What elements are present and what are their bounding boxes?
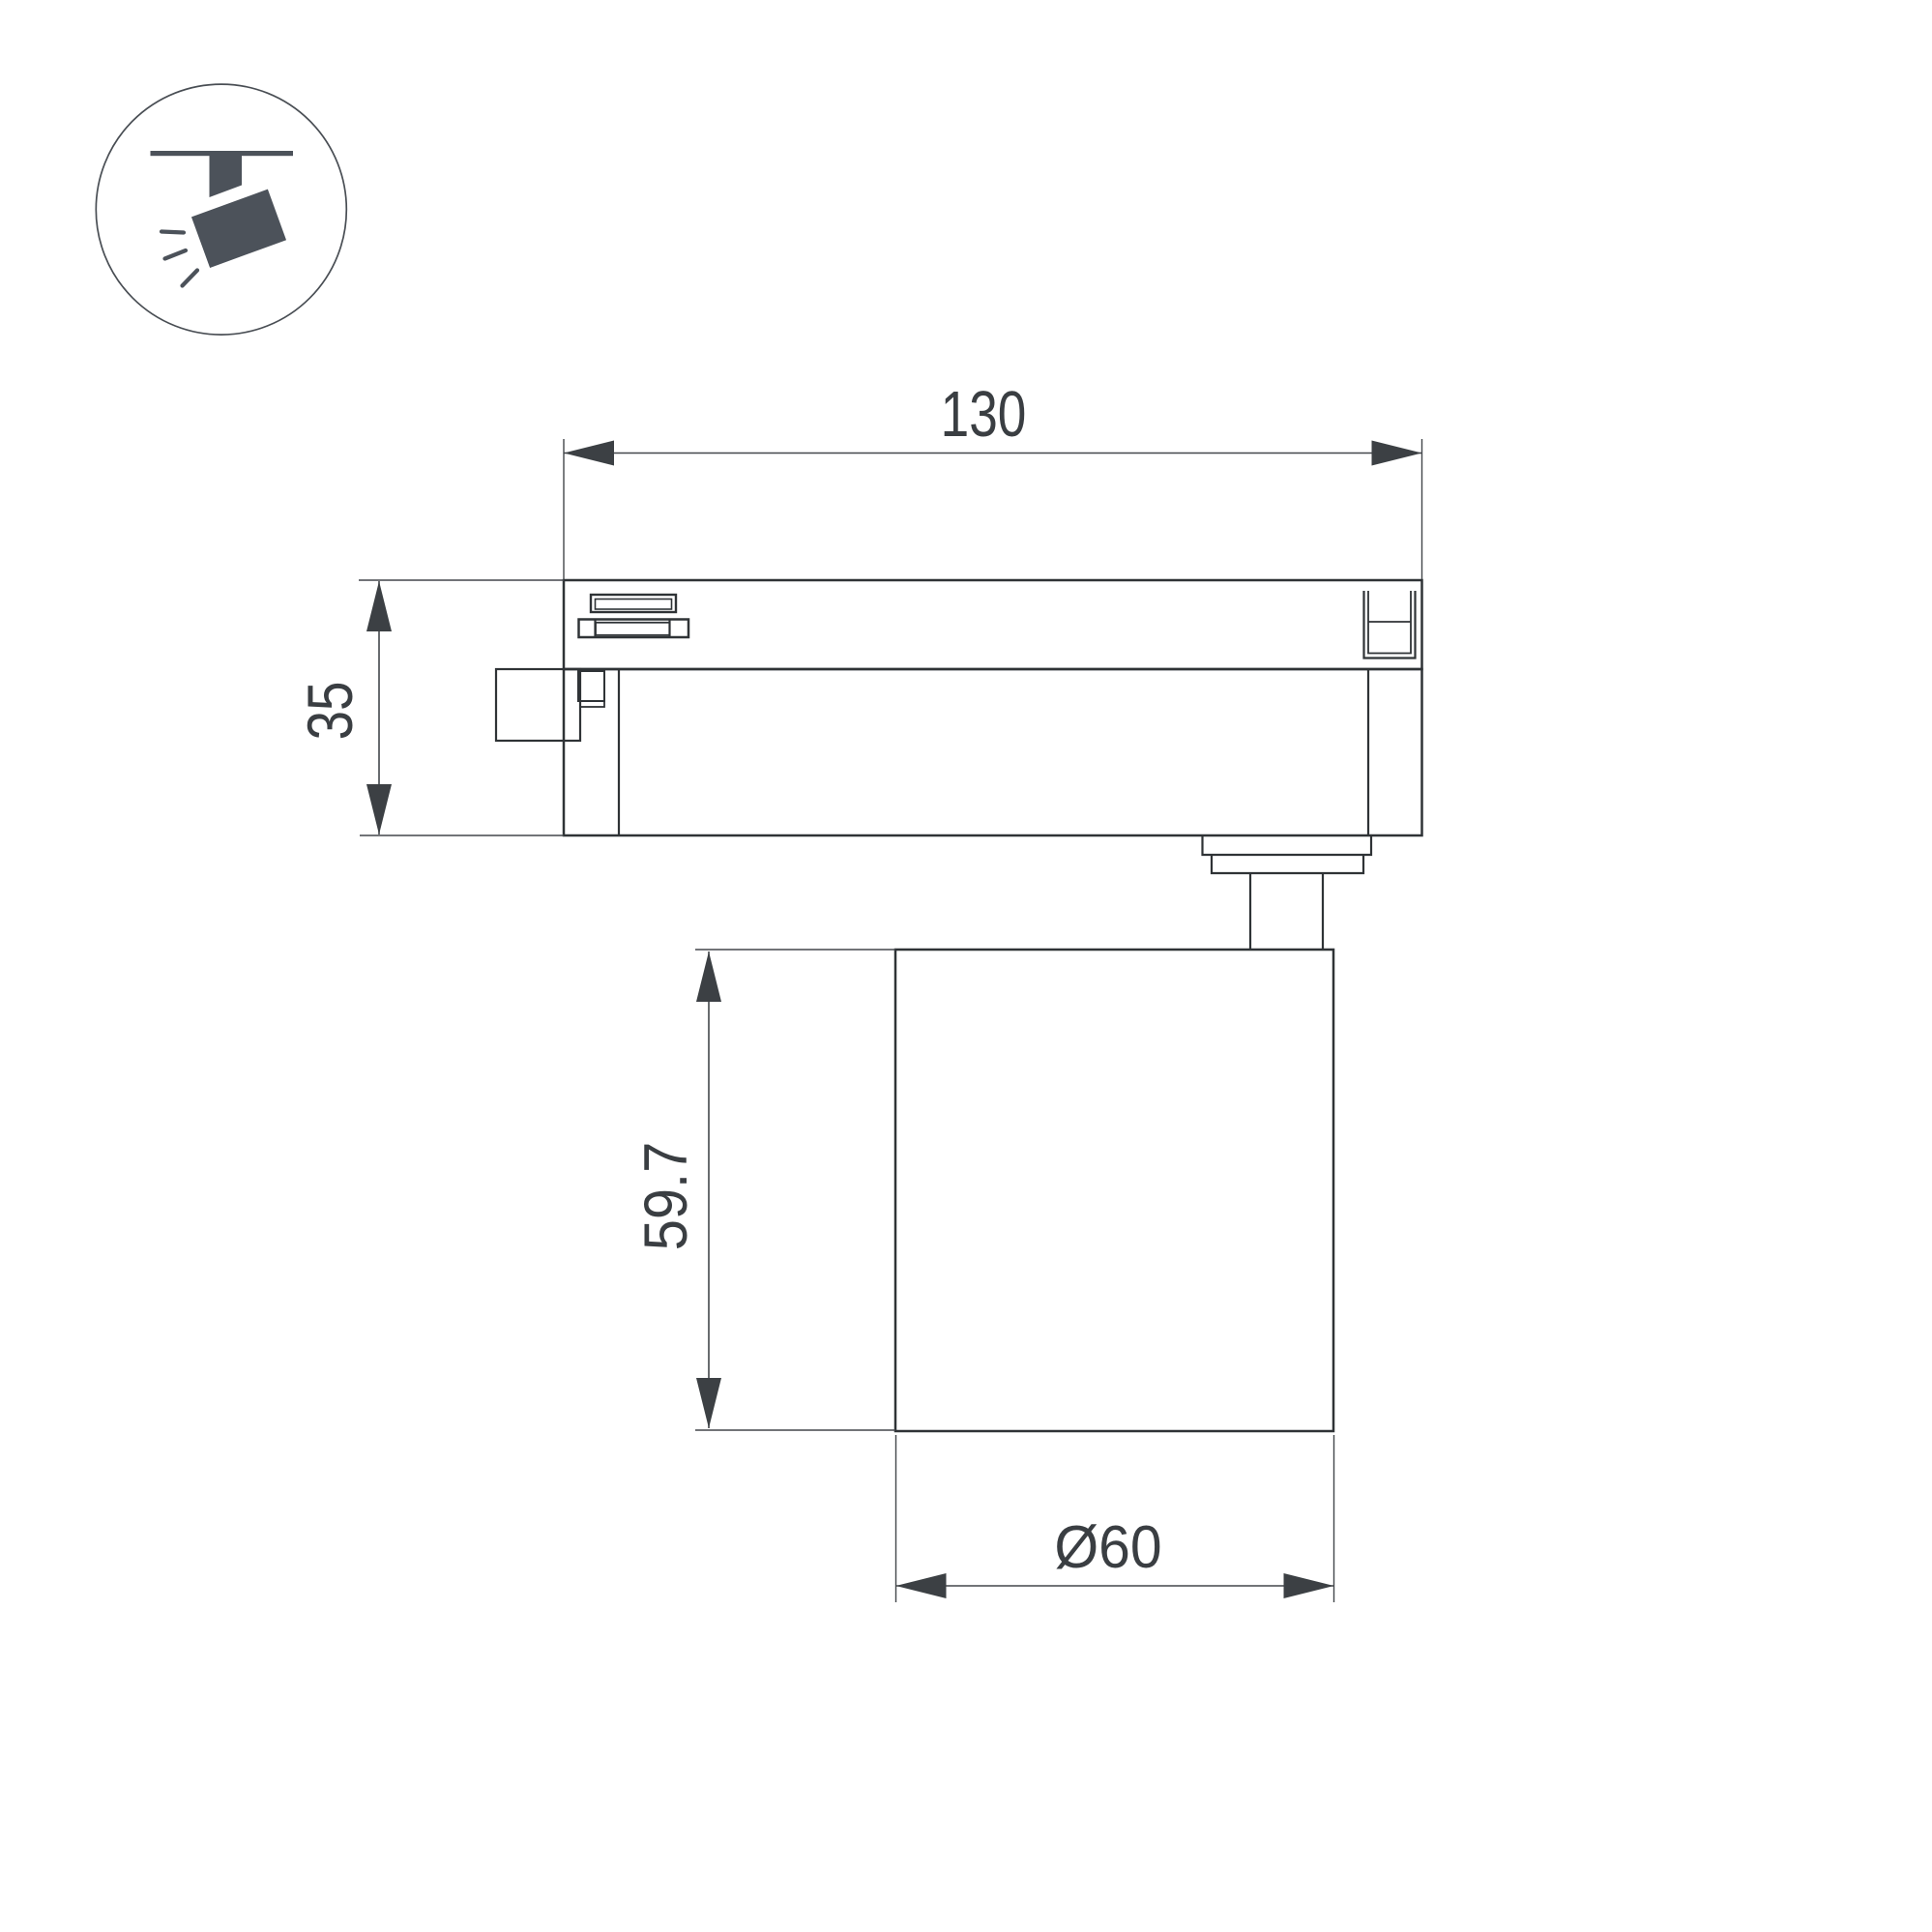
svg-text:59.7: 59.7 <box>630 1142 699 1250</box>
svg-text:35: 35 <box>294 682 366 741</box>
svg-text:130: 130 <box>941 377 1027 450</box>
svg-text:Ø60: Ø60 <box>1054 1513 1161 1581</box>
